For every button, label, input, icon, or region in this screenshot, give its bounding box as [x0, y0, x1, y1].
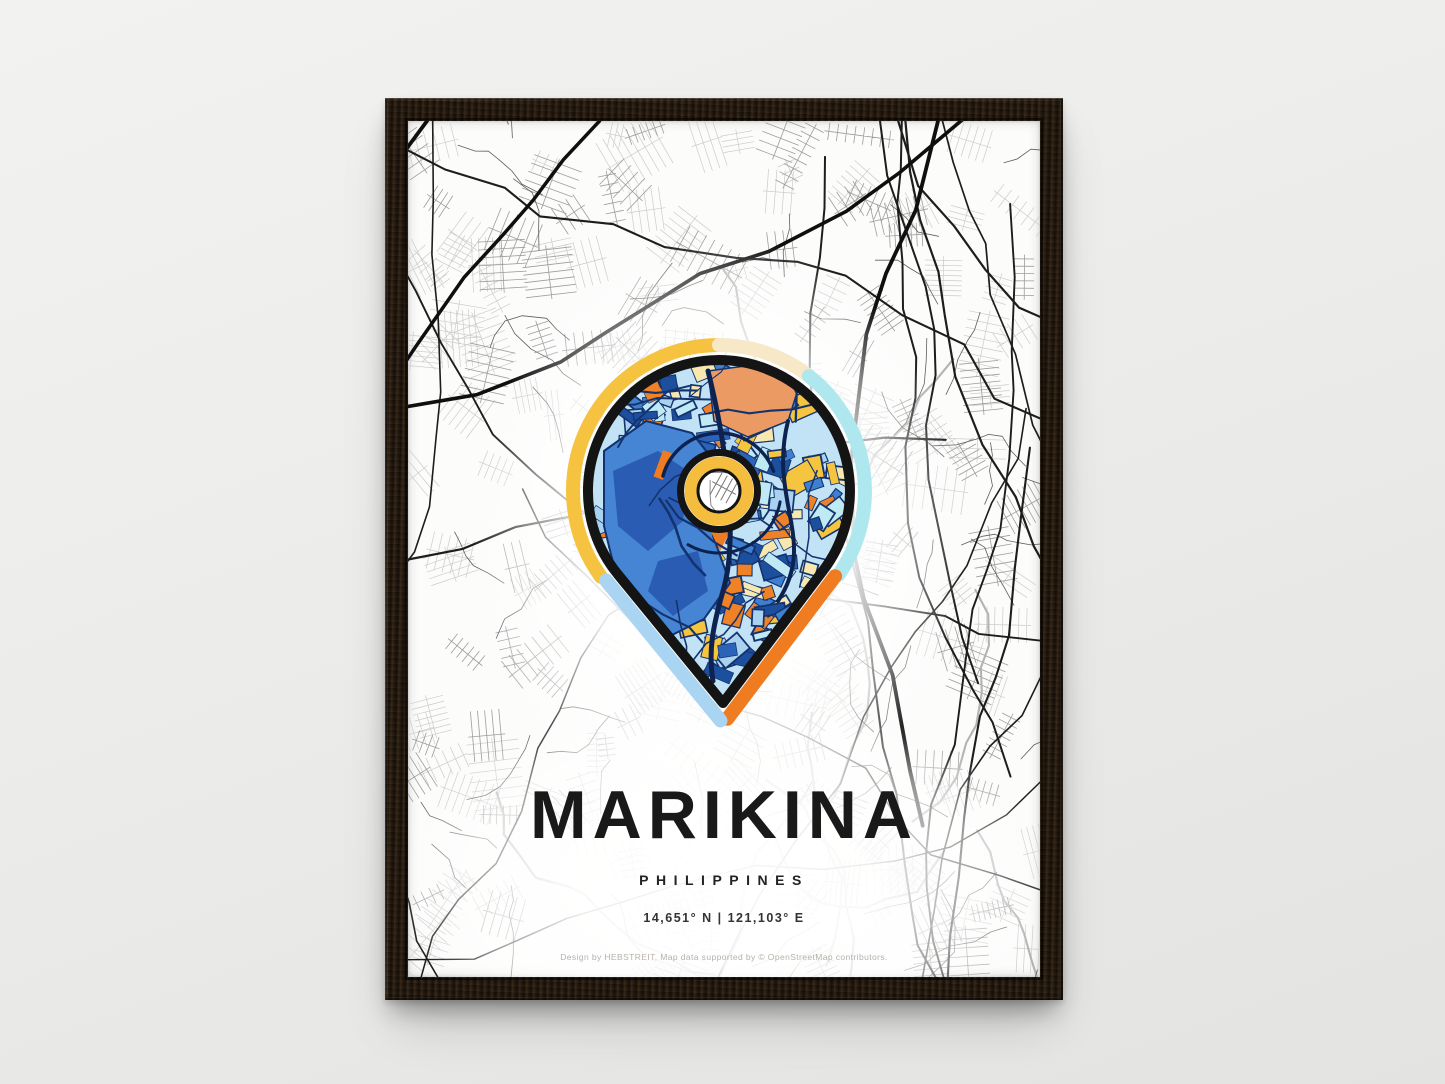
poster-coordinates: 14,651° N | 121,103° E [408, 912, 1040, 925]
poster-frame: MARIKINA PHILIPPINES 14,651° N | 121,103… [385, 98, 1063, 1000]
wall: { "poster": { "title": "MARIKINA", "subt… [0, 0, 1445, 1084]
poster: MARIKINA PHILIPPINES 14,651° N | 121,103… [408, 121, 1040, 977]
poster-credit: Design by HEBSTREIT, Map data supported … [408, 953, 1040, 962]
poster-subtitle: PHILIPPINES [408, 873, 1040, 887]
poster-title: MARIKINA [408, 781, 1040, 849]
